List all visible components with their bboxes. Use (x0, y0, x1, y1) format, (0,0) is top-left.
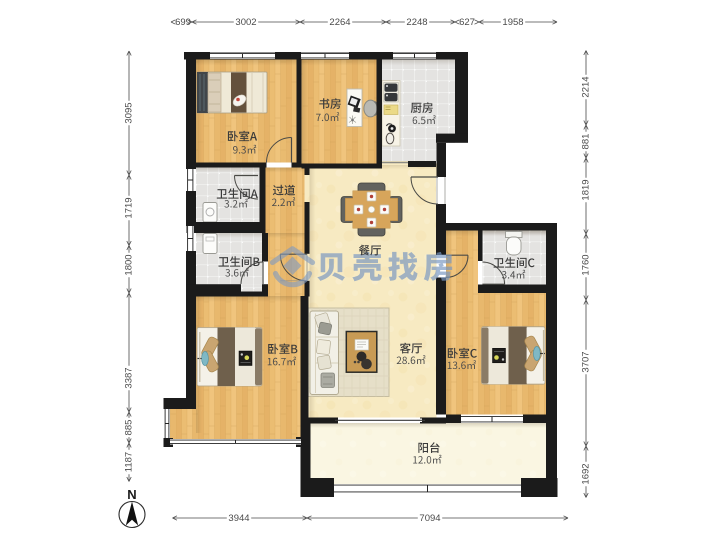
svg-text:885: 885 (124, 420, 135, 436)
svg-text:7094: 7094 (419, 513, 440, 524)
svg-text:1187: 1187 (124, 452, 135, 472)
svg-text:2214: 2214 (581, 76, 592, 97)
svg-text:699: 699 (175, 17, 191, 28)
svg-text:3002: 3002 (235, 17, 256, 28)
svg-text:1692: 1692 (581, 463, 592, 484)
svg-text:627: 627 (459, 17, 475, 28)
svg-text:3944: 3944 (228, 513, 249, 524)
svg-text:2264: 2264 (329, 17, 350, 28)
svg-text:1719: 1719 (124, 197, 135, 218)
svg-text:N: N (127, 487, 136, 502)
svg-text:1819: 1819 (581, 179, 592, 200)
svg-text:3095: 3095 (124, 102, 135, 123)
svg-text:3387: 3387 (124, 367, 135, 388)
svg-text:1958: 1958 (502, 17, 523, 28)
svg-text:881: 881 (581, 134, 592, 150)
svg-text:2248: 2248 (406, 17, 427, 28)
svg-text:1760: 1760 (581, 254, 592, 275)
svg-text:1800: 1800 (124, 254, 135, 275)
svg-text:3707: 3707 (581, 351, 592, 372)
